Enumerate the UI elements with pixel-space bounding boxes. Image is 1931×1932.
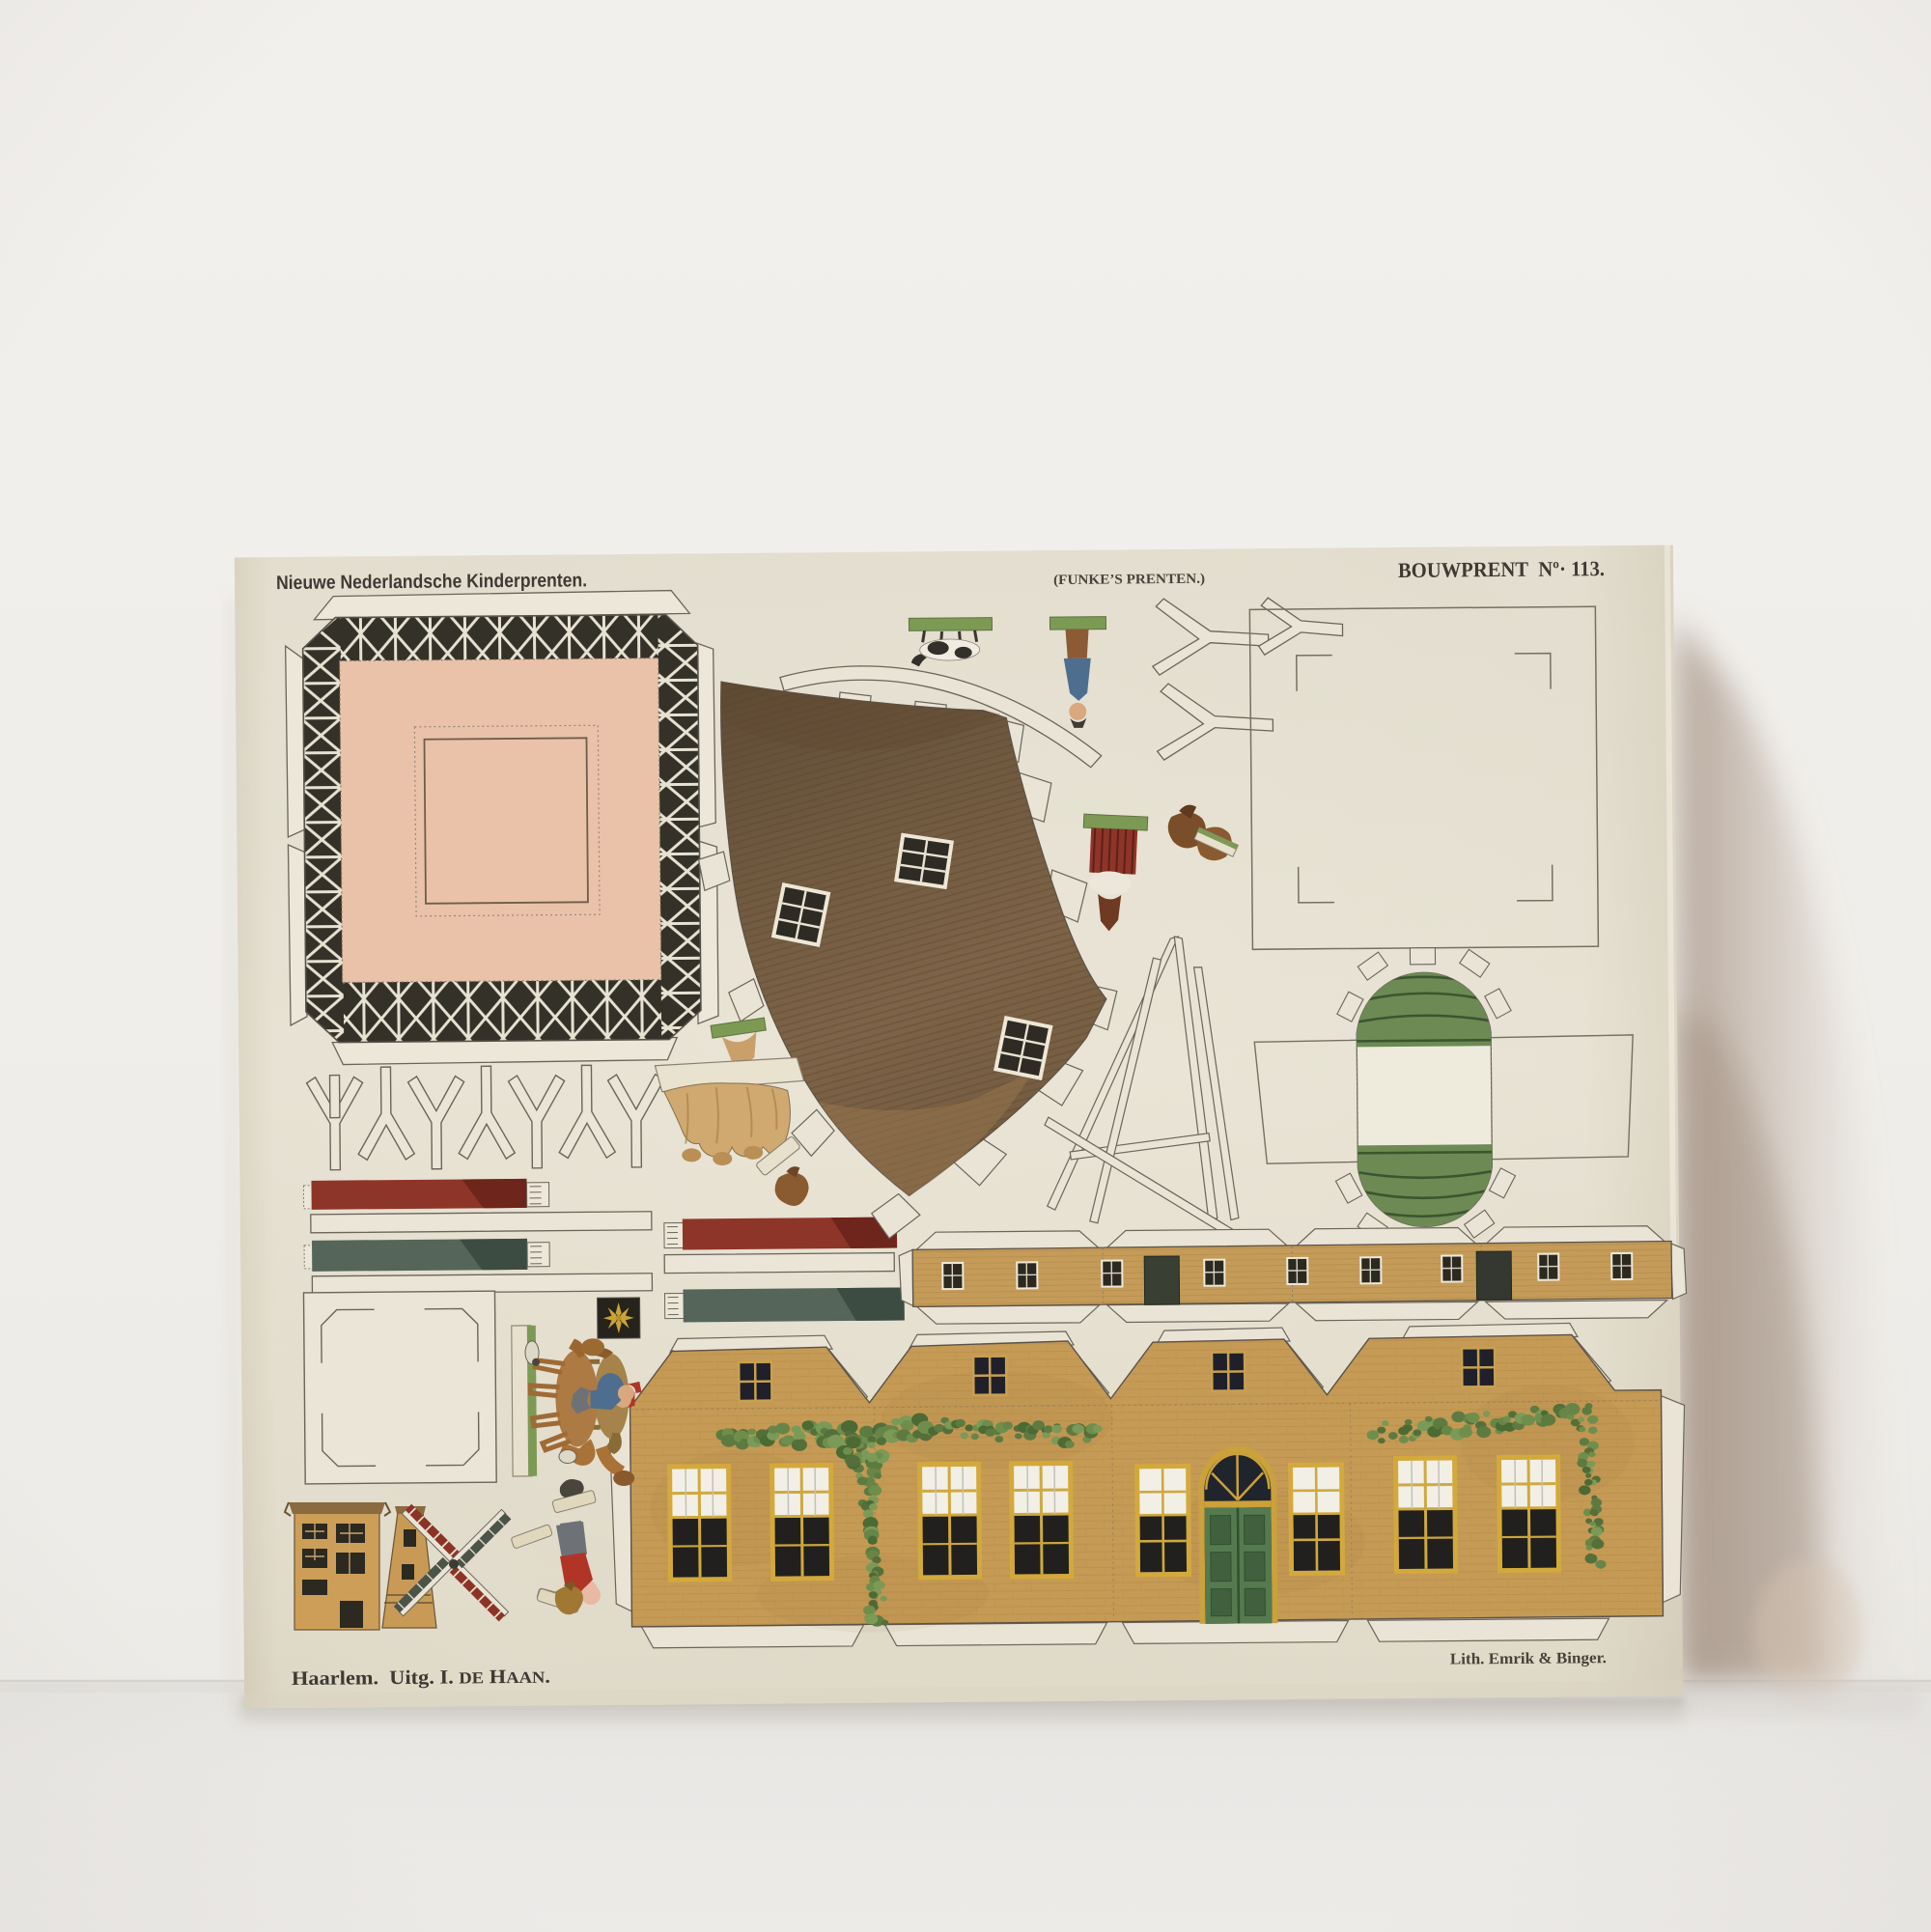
svg-text:BOUWPRENT Nº· 113.: BOUWPRENT Nº· 113. bbox=[1398, 556, 1605, 582]
svg-text:(FUNKE’S PRENTEN.): (FUNKE’S PRENTEN.) bbox=[1053, 572, 1205, 588]
svg-text:Nieuwe Nederlandsche Kinderpre: Nieuwe Nederlandsche Kinderprenten. bbox=[276, 570, 587, 594]
svg-text:Haarlem. Uitg. I. DE HAAN.: Haarlem. Uitg. I. DE HAAN. bbox=[292, 1666, 550, 1690]
svg-text:Lith. Emrik & Binger.: Lith. Emrik & Binger. bbox=[1450, 1648, 1607, 1667]
